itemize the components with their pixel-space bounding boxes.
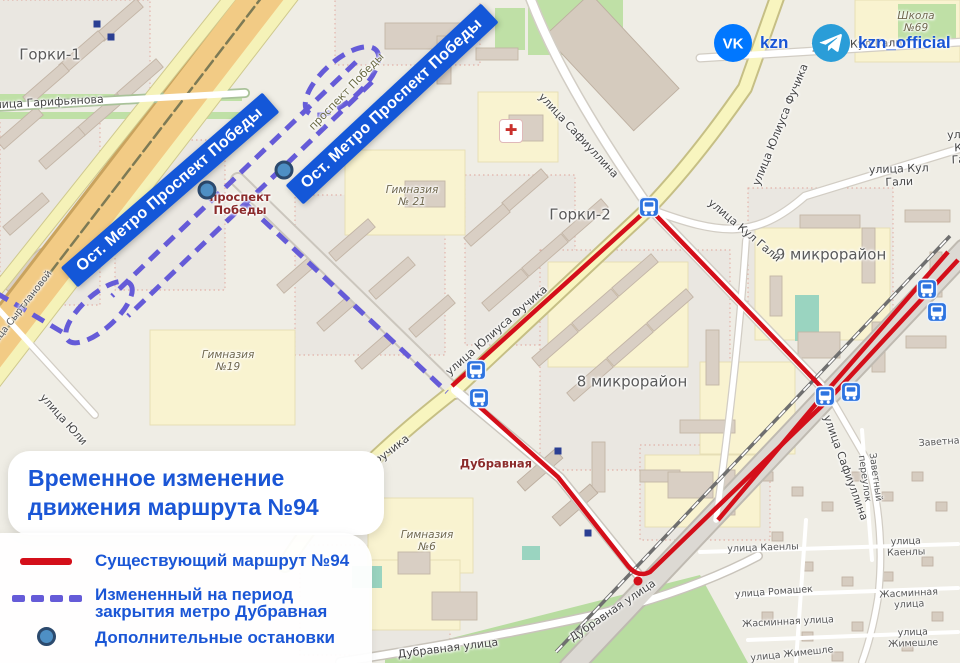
title-line-2: движения маршрута №94 bbox=[28, 493, 364, 522]
telegram-handle: kzn_official bbox=[858, 33, 951, 53]
svg-text:VK: VK bbox=[723, 36, 744, 53]
legend-swatch-extra-stop bbox=[37, 627, 56, 646]
vk-badge[interactable]: VK kzn bbox=[714, 24, 788, 62]
telegram-icon bbox=[812, 24, 850, 62]
legend-label-extra-stops: Дополнительные остановки bbox=[95, 629, 335, 646]
telegram-badge[interactable]: kzn_official bbox=[812, 24, 951, 62]
vk-handle: kzn bbox=[760, 33, 788, 53]
title-card: Временное изменение движения маршрута №9… bbox=[8, 451, 384, 535]
legend-swatch-changed-route bbox=[12, 595, 82, 602]
legend-label-changed-route-line1: Измененный на период bbox=[95, 586, 293, 603]
legend-card: Существующий маршрут №94 Измененный на п… bbox=[0, 533, 372, 663]
legend-label-existing-route: Существующий маршрут №94 bbox=[95, 552, 349, 569]
legend-swatch-existing-route bbox=[20, 558, 72, 565]
transit-map-poster: Горки-1Горки-28 микрорайон9 микрорайонул… bbox=[0, 0, 960, 663]
title-line-1: Временное изменение bbox=[28, 464, 364, 493]
legend-label-changed-route-line2: закрытия метро Дубравная bbox=[95, 603, 327, 620]
vk-icon: VK bbox=[714, 24, 752, 62]
